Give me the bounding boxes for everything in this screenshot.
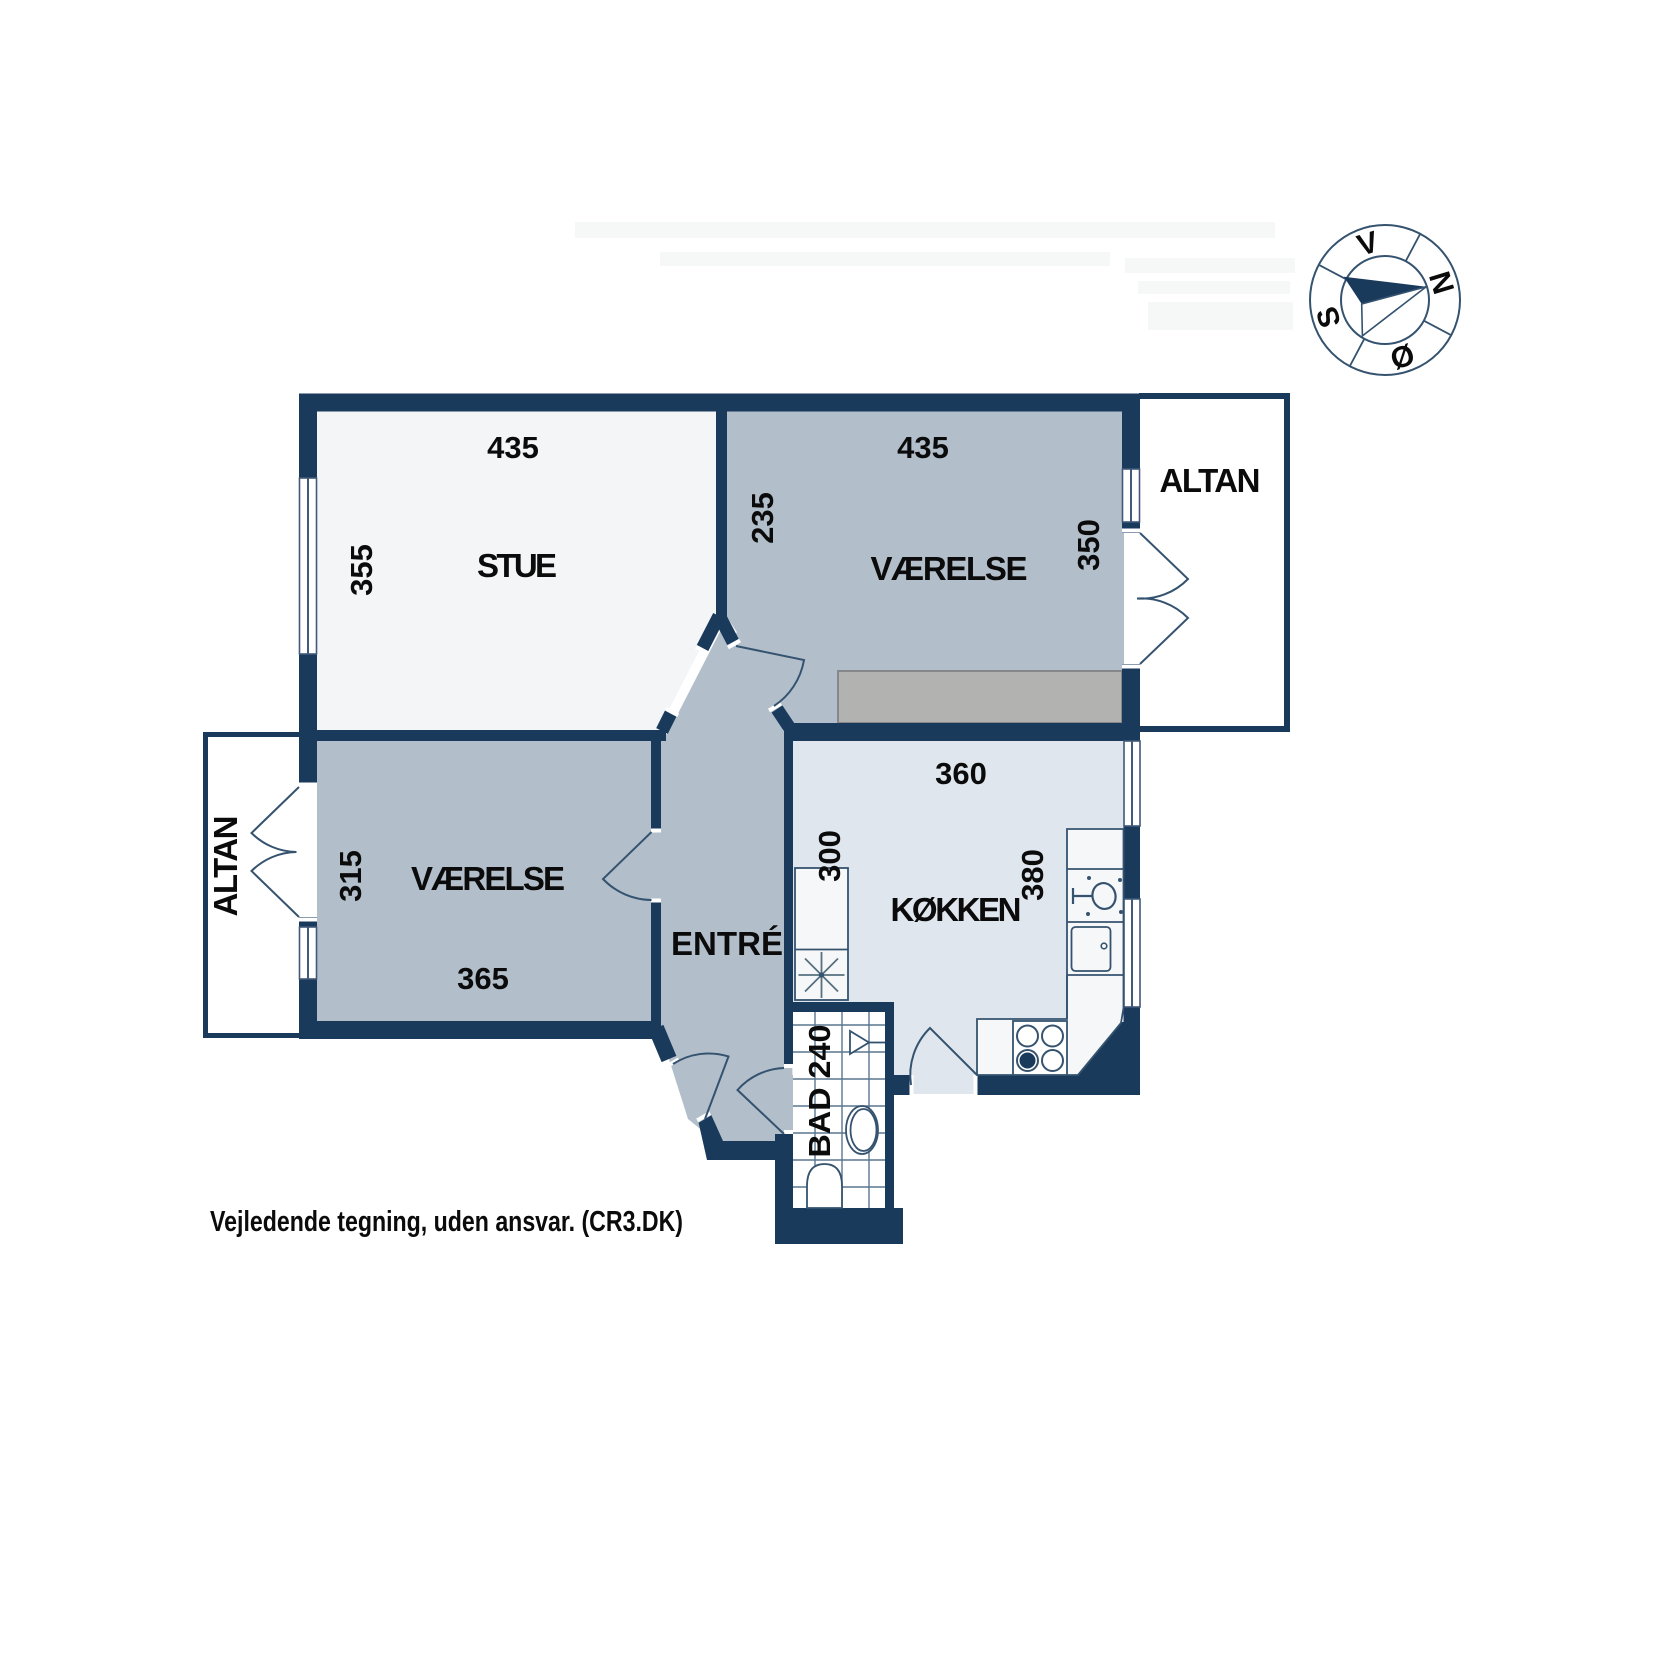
svg-text:435: 435 — [897, 430, 949, 465]
svg-text:KØKKEN: KØKKEN — [891, 891, 1022, 928]
svg-text:235: 235 — [745, 492, 780, 544]
svg-text:VÆRELSE: VÆRELSE — [871, 550, 1028, 587]
svg-text:435: 435 — [487, 430, 539, 465]
svg-text:STUE: STUE — [477, 547, 557, 584]
svg-text:ALTAN: ALTAN — [207, 816, 244, 917]
svg-text:300: 300 — [812, 830, 847, 882]
svg-text:Vejledende tegning, uden ansva: Vejledende tegning, uden ansvar. (CR3.DK… — [210, 1206, 683, 1238]
svg-text:ALTAN: ALTAN — [1160, 462, 1261, 499]
svg-text:ENTRÉ: ENTRÉ — [671, 925, 783, 962]
svg-text:380: 380 — [1015, 849, 1050, 901]
svg-text:BAD 240: BAD 240 — [802, 1025, 837, 1158]
svg-text:315: 315 — [333, 850, 368, 902]
svg-text:VÆRELSE: VÆRELSE — [411, 860, 565, 897]
svg-text:365: 365 — [457, 961, 509, 996]
svg-text:360: 360 — [935, 756, 987, 791]
svg-text:355: 355 — [344, 544, 379, 596]
svg-text:350: 350 — [1071, 519, 1106, 571]
